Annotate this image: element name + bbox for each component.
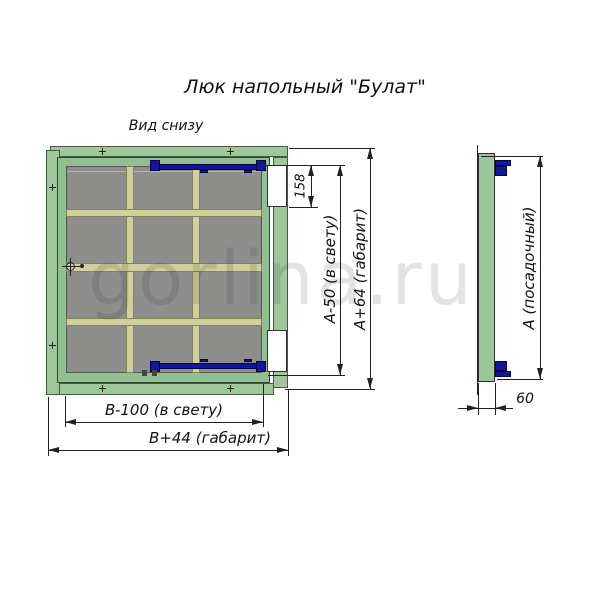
hinge-top-tab-2	[244, 170, 252, 173]
stiffener-rib-horizontal-3	[66, 318, 262, 326]
hinge-bottom-tab-1	[200, 359, 208, 362]
screw-mark-icon	[49, 184, 56, 191]
dimension-arrow	[537, 368, 543, 379]
dimension-arrow	[277, 447, 288, 453]
extension-line	[481, 156, 543, 157]
dimension-label-height-overall: A+64 (габарит)	[351, 208, 369, 330]
extension-line	[265, 165, 345, 166]
hinge-bottom-tab-2	[244, 359, 252, 362]
bolt-mark-2	[152, 370, 157, 376]
extension-line	[478, 383, 479, 415]
extension-line	[289, 148, 375, 149]
dimension-arrow	[495, 405, 506, 411]
frame-bottom-bar	[48, 383, 274, 395]
dimension-label-depth: 60	[516, 391, 534, 407]
technical-drawing-canvas: Люк напольный "Булат" Вид снизу	[0, 0, 600, 600]
dimension-arrow	[48, 447, 59, 453]
screw-mark-icon	[227, 385, 234, 392]
dimension-arrow	[252, 419, 263, 425]
screw-mark-icon	[99, 148, 106, 155]
dimension-arrow	[537, 156, 543, 167]
dimension-label-height-clear: A-50 (в свету)	[321, 215, 339, 324]
dimension-label-158: 158	[294, 174, 309, 199]
dimension-arrow	[337, 364, 343, 375]
screw-mark-icon	[99, 385, 106, 392]
side-hinge-bottom-plate	[495, 371, 511, 377]
extension-line	[288, 390, 289, 456]
hinge-bottom-foot-right	[256, 361, 266, 372]
side-hinge-top-body	[495, 166, 507, 176]
dimension-line-height-overall	[370, 148, 371, 389]
view-label: Вид снизу	[110, 118, 222, 134]
dimension-arrow	[467, 405, 478, 411]
hinge-top-foot-left	[150, 160, 160, 171]
dimension-label-width-clear: B-100 (в свету)	[105, 401, 223, 419]
dimension-label-width-overall: B+44 (габарит)	[149, 429, 271, 447]
stiffener-rib-horizontal-1	[66, 209, 262, 217]
dimension-line-seat	[540, 156, 541, 379]
page-title: Люк напольный "Булат"	[130, 76, 480, 98]
extension-line	[289, 207, 318, 208]
center-mark-hline	[62, 266, 80, 267]
hinge-bottom-bar	[152, 363, 264, 369]
stiffener-rib-horizontal-2	[66, 263, 262, 272]
hinge-cutout-bottom	[267, 330, 287, 372]
dimension-arrow	[367, 378, 373, 389]
side-hinge-bottom-body	[495, 361, 507, 371]
dimension-line-width-clear	[65, 422, 263, 423]
dimension-arrow	[308, 196, 314, 207]
dimension-arrow	[367, 148, 373, 159]
dimension-line-height-clear	[340, 165, 341, 375]
lid-panel-edge-highlight	[67, 171, 261, 172]
screw-mark-icon	[49, 342, 56, 349]
extension-line	[268, 375, 345, 376]
screw-mark-icon	[227, 148, 234, 155]
side-frame-profile	[478, 153, 495, 382]
extension-line	[497, 379, 543, 380]
dimension-arrow	[308, 165, 314, 176]
dimension-label-seat: A (посадочный)	[520, 207, 538, 330]
dimension-line-width-overall	[48, 450, 288, 451]
dimension-arrow	[337, 165, 343, 176]
hinge-top-tab-1	[200, 170, 208, 173]
extension-line	[263, 384, 264, 427]
center-mark-dot	[80, 264, 84, 268]
frame-top-bar	[50, 146, 288, 157]
extension-line	[285, 389, 375, 390]
dimension-arrow	[65, 419, 76, 425]
hinge-cutout-top	[267, 165, 287, 207]
bolt-mark-1	[142, 370, 147, 376]
center-mark-vline	[70, 258, 71, 276]
